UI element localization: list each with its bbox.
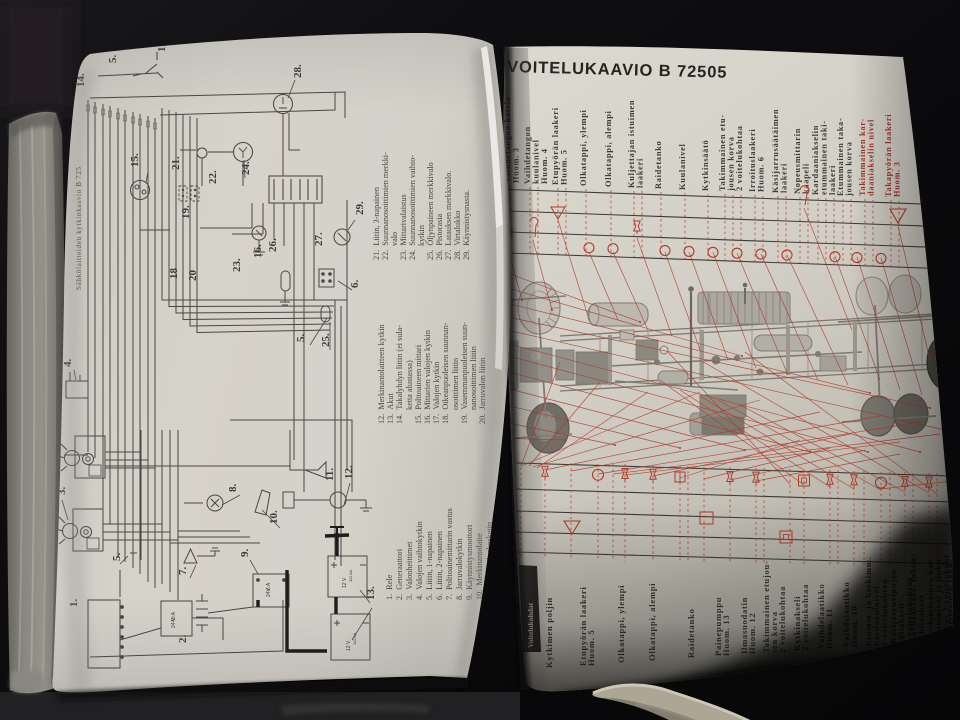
svg-text:27. Latauksen merkkivalo.: 27. Latauksen merkkivalo. [444, 171, 453, 260]
svg-text:15. Polttoaineen mittari: 15. Polttoaineen mittari [414, 344, 423, 424]
svg-text:14. Takalyhdyn liitin (ei sul: 14. Takalyhdyn liitin (ei sula- [395, 325, 404, 424]
svg-text:17. Valojen kytkin: 17. Valojen kytkin [432, 362, 441, 424]
svg-text:21. Liitin, 3-napainen: 21. Liitin, 3-napainen [372, 187, 381, 260]
svg-text:25. Öljynpaineen merkkivalo: 25. Öljynpaineen merkkivalo [426, 162, 435, 260]
svg-text:Olkatappi, ylempi: Olkatappi, ylempi [579, 109, 588, 186]
svg-text:2.: 2. [177, 635, 189, 644]
svg-text:28. Virtalukko: 28. Virtalukko [453, 211, 462, 260]
svg-text:21.: 21. [170, 156, 182, 170]
svg-text:3. Valonheittimet: 3. Valonheittimet [405, 541, 414, 600]
svg-text:23.: 23. [231, 258, 243, 272]
svg-text:ketta alustassa): ketta alustassa) [405, 360, 414, 410]
svg-text:Olkatappi, alempi: Olkatappi, alempi [604, 110, 613, 187]
svg-text:6. Liitin, 2-napainen: 6. Liitin, 2-napainen [435, 531, 444, 600]
svg-text:8. Jarruvalokytkin: 8. Jarruvalokytkin [455, 538, 464, 600]
svg-text:5.: 5. [111, 553, 123, 562]
svg-text:11.: 11. [324, 468, 336, 481]
svg-text:Raidetanko: Raidetanko [654, 141, 663, 189]
svg-text:22.: 22. [207, 170, 219, 184]
svg-text:osoittimen liitin: osoittimen liitin [451, 358, 460, 410]
svg-text:16. Mittarien valojen kytkin: 16. Mittarien valojen kytkin [423, 330, 432, 424]
svg-text:28.: 28. [292, 64, 304, 78]
svg-text:27.: 27. [313, 232, 325, 246]
svg-text:40 A: 40 A [171, 611, 177, 622]
svg-text:15.: 15. [129, 153, 141, 167]
svg-text:24.: 24. [240, 161, 252, 175]
svg-text:9.: 9. [239, 549, 251, 558]
svg-text:19. Vasemmanpuoleisen suun-: 19. Vasemmanpuoleisen suun- [460, 322, 469, 424]
svg-text:5.: 5. [107, 55, 119, 64]
svg-text:nanosoittimen liitin: nanosoittimen liitin [469, 346, 478, 410]
svg-text:13. Akut: 13. Akut [386, 393, 395, 424]
svg-text:26. Pistorasia: 26. Pistorasia [435, 213, 444, 260]
svg-text:5.: 5. [295, 334, 307, 343]
svg-text:22. Suunnanosoittimien merkki: 22. Suunnanosoittimien merkki- [381, 152, 390, 260]
svg-text:kytkin: kytkin [417, 225, 426, 246]
svg-text:29.: 29. [354, 201, 366, 215]
svg-text:29. Käynnistysnasta.: 29. Käynnistysnasta. [462, 190, 471, 260]
svg-text:20: 20 [187, 270, 199, 282]
svg-text:12. Merkinantolaitteen kytkin: 12. Merkinantolaitteen kytkin [377, 324, 386, 424]
svg-text:18: 18 [168, 268, 180, 280]
svg-text:4. Valojen vaihtokytkin: 4. Valojen vaihtokytkin [415, 521, 424, 600]
svg-text:26.: 26. [267, 238, 279, 252]
svg-text:Kuulanivel: Kuulanivel [678, 143, 687, 190]
svg-text:Kytkinsäätö: Kytkinsäätö [701, 140, 710, 191]
svg-text:2. Generaattori: 2. Generaattori [395, 548, 404, 600]
svg-text:6 A: 6 A [266, 582, 272, 590]
svg-text:5. Liitin, 1-napainen: 5. Liitin, 1-napainen [425, 531, 434, 600]
svg-text:1. Rele: 1. Rele [385, 574, 394, 600]
svg-text:8.: 8. [227, 484, 239, 493]
svg-text:7.: 7. [177, 567, 189, 576]
svg-text:23. Mittarivalaistus: 23. Mittarivalaistus [399, 194, 408, 260]
svg-text:valo: valo [390, 232, 399, 246]
svg-text:12.: 12. [343, 465, 355, 479]
svg-text:110 Ah: 110 Ah [352, 633, 357, 645]
svg-text:16.: 16. [252, 244, 264, 258]
svg-text:24. Suunnanosoittimien vaihto: 24. Suunnanosoittimien vaihto- [408, 155, 417, 260]
svg-text:19.: 19. [180, 205, 192, 219]
svg-text:6.: 6. [349, 280, 361, 289]
svg-text:7. Polttoainemittarin vastus: 7. Polttoainemittarin vastus [445, 508, 454, 600]
svg-text:13.: 13. [365, 586, 377, 600]
svg-text:18. Oikeanpuoleisen suunnan-: 18. Oikeanpuoleisen suunnan- [441, 322, 450, 424]
svg-text:110 Ah: 110 Ah [348, 570, 353, 582]
